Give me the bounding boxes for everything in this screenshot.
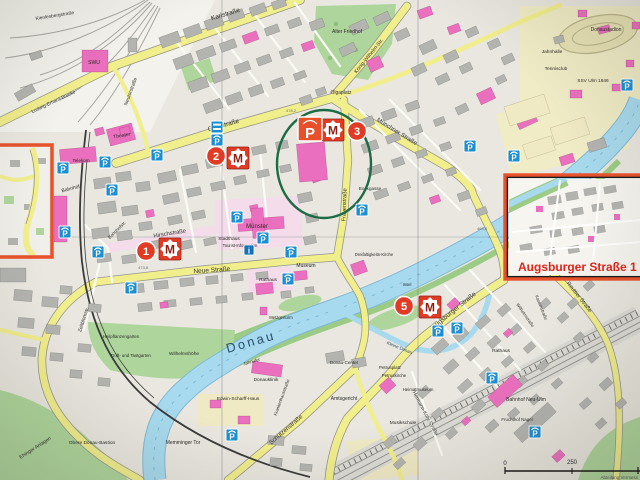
parking-icon: P [282, 273, 294, 286]
parking-icon: P [621, 79, 633, 92]
parking-icon: P [226, 429, 238, 442]
parking-icon: P [464, 140, 476, 153]
building [612, 84, 622, 91]
building [270, 457, 283, 466]
building [255, 282, 273, 295]
svg-text:P: P [60, 166, 66, 175]
place-label: Telekom [72, 158, 89, 163]
building [70, 369, 83, 378]
place-label: Jahnhalle [542, 49, 563, 55]
building [238, 416, 250, 424]
building [206, 275, 219, 284]
svg-text:M: M [425, 300, 435, 314]
building [139, 221, 153, 231]
place-label: Petrusplatz [379, 365, 401, 370]
svg-text:P: P [95, 250, 101, 259]
building [300, 463, 313, 471]
place-label: Memminger Tor [166, 440, 201, 446]
place-label: Donauklinik [254, 377, 279, 383]
place-label: Stadthaus [218, 236, 240, 242]
building [46, 324, 61, 334]
building [78, 343, 92, 352]
building [14, 289, 33, 302]
svg-text:P: P [109, 188, 115, 197]
svg-text:P: P [467, 144, 473, 153]
building [260, 307, 267, 315]
place-label: Rathaus [259, 277, 277, 283]
building [154, 280, 169, 289]
elevation-label: 473,8 [138, 265, 149, 270]
parking-icon: P [508, 150, 520, 163]
location-marker-1: 1 [137, 242, 156, 261]
svg-text:3: 3 [354, 126, 360, 138]
place-label: Donau-Center [330, 360, 359, 365]
building [22, 346, 37, 356]
transit-stop-icon [211, 121, 223, 133]
parking-icon: P [432, 325, 444, 338]
building [0, 268, 26, 282]
place-label: Dreifaltigkeits-Kirche [355, 252, 394, 257]
inset-right-label: Augsburger Straße 1 [518, 260, 637, 274]
building [135, 181, 150, 192]
place-label: Musikschule [390, 420, 417, 426]
place-label: Wilhelmshöhe [169, 351, 199, 357]
svg-text:P: P [62, 230, 68, 239]
map-canvas: KarlstraßeOlgastraßeNeue StraßeHirschstr… [0, 0, 640, 480]
parking-icon: P [59, 226, 71, 239]
svg-text:M: M [165, 242, 175, 256]
building [305, 287, 315, 294]
building [122, 254, 137, 264]
building [115, 171, 131, 182]
parking-garage-icon-large: P [298, 117, 322, 142]
place-label: SSV Ulm 1846 [577, 78, 609, 84]
svg-text:P: P [511, 154, 517, 163]
street-label: Frauenstraße [341, 188, 348, 221]
svg-text:P: P [624, 83, 630, 92]
elevation-label: 465,8 [477, 226, 488, 231]
location-marker-5: 5 [395, 297, 414, 316]
mueller-store-logo: M [322, 119, 344, 141]
svg-text:P: P [305, 125, 315, 142]
svg-text:P: P [260, 236, 266, 245]
mueller-store-logo: M [419, 296, 441, 318]
svg-text:P: P [229, 433, 235, 442]
svg-text:P: P [128, 286, 134, 295]
svg-text:P: P [454, 326, 460, 335]
svg-text:M: M [233, 151, 243, 165]
place-label: Alter Friedhof [332, 29, 363, 35]
parking-icon: P [211, 134, 223, 147]
parking-icon: P [285, 246, 297, 259]
place-label: Heilpflanzengarten [103, 334, 140, 339]
building [128, 38, 137, 52]
building [294, 270, 308, 280]
place-label: Metzgerturm [269, 315, 293, 320]
parking-icon: P [106, 184, 118, 197]
parking-icon: P [486, 372, 498, 385]
street-label: Bockgasse [359, 186, 382, 191]
building [50, 352, 64, 361]
building [292, 445, 307, 454]
parking-icon: P [451, 322, 463, 335]
svg-text:P: P [154, 153, 160, 162]
building [570, 90, 582, 98]
building [138, 302, 153, 311]
building [296, 142, 327, 182]
svg-text:2: 2 [213, 151, 219, 163]
parking-icon: P [257, 232, 269, 245]
svg-text:P: P [234, 215, 240, 224]
building [160, 302, 169, 309]
place-label: Münster [246, 224, 268, 230]
place-label: SWU [88, 60, 100, 66]
svg-text:5: 5 [401, 301, 407, 313]
building [632, 22, 640, 29]
building [18, 317, 35, 328]
svg-text:i: i [248, 246, 250, 255]
building [626, 60, 634, 67]
svg-text:P: P [532, 430, 538, 439]
place-label: Fruchthof Nagel [501, 417, 532, 422]
inset-right: Augsburger Straße 1 [505, 175, 640, 279]
building [180, 277, 195, 286]
place-label: Bahnhof Neu-Ulm [506, 397, 546, 403]
parking-icon: P [529, 426, 541, 439]
location-marker-2: 2 [207, 147, 226, 166]
parking-icon: P [125, 282, 137, 295]
svg-text:P: P [489, 376, 495, 385]
street-label: Olgaplatz [330, 90, 352, 96]
building [281, 290, 292, 298]
building [145, 209, 154, 218]
building [60, 285, 73, 294]
tourist-info-icon: i [244, 245, 254, 255]
svg-text:P: P [102, 160, 108, 169]
building [190, 297, 203, 305]
city-map-photo: KarlstraßeOlgastraßeNeue StraßeHirschstr… [0, 0, 640, 480]
building [116, 230, 132, 241]
place-label: Insel [403, 282, 412, 287]
svg-text:1: 1 [143, 246, 149, 258]
mueller-store-logo: M [227, 147, 249, 169]
place-label: Duft- und Tastgarten [111, 353, 151, 358]
place-label: Heimatmuseum [403, 387, 434, 392]
parking-icon: P [356, 204, 368, 217]
location-marker-3: 3 [348, 122, 367, 141]
place-label: Tennisclub [545, 66, 568, 72]
scale-distance: 250 [567, 460, 578, 466]
building [578, 10, 587, 17]
building [231, 273, 244, 281]
svg-text:P: P [214, 138, 220, 147]
place-label: Rathaus [492, 348, 510, 354]
svg-text:P: P [288, 250, 294, 259]
place-label: Petruskirche [382, 373, 407, 378]
place-label: Museum [296, 263, 315, 269]
parking-icon: P [151, 149, 163, 162]
mueller-store-logo: M [159, 238, 181, 260]
building [42, 296, 59, 307]
parking-icon: P [231, 211, 243, 224]
parking-icon: P [92, 246, 104, 259]
building [242, 292, 254, 300]
svg-text:P: P [285, 277, 291, 286]
map-credit: Abteilung Vermess [600, 475, 638, 480]
svg-text:M: M [328, 123, 338, 137]
place-label: Obere Donau-Bastion [69, 440, 116, 446]
place-label: Amtsgericht [331, 396, 358, 402]
parking-icon: P [57, 162, 69, 175]
building [97, 201, 116, 214]
building [121, 205, 138, 216]
place-label: Donaustadion [591, 27, 622, 33]
parking-icon: P [99, 156, 111, 169]
svg-text:P: P [435, 329, 441, 338]
elevation-label: 478,2 [286, 108, 297, 113]
inset-left [0, 145, 52, 257]
place-label: Edwin-Scharff-Haus [217, 396, 260, 402]
building [216, 295, 228, 303]
svg-text:P: P [359, 208, 365, 217]
building [98, 377, 111, 386]
